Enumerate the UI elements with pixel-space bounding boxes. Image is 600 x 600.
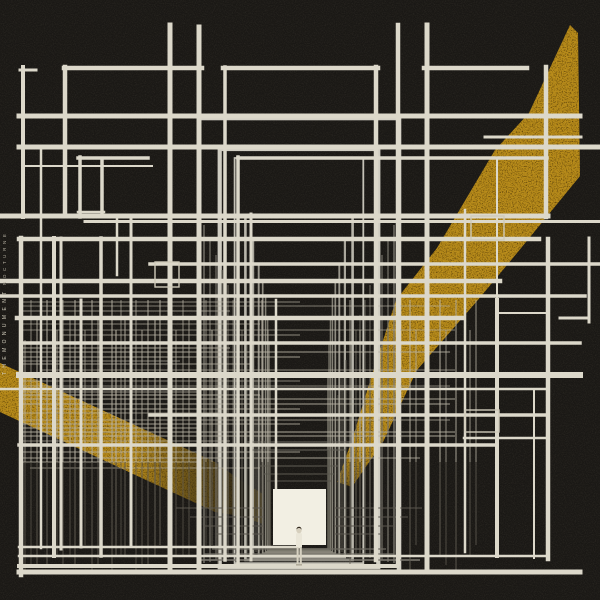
svg-text:N O C T U R N E: N O C T U R N E: [2, 233, 7, 285]
svg-text:T H E M O N U M E N T: T H E M O N U M E N T: [2, 290, 8, 375]
